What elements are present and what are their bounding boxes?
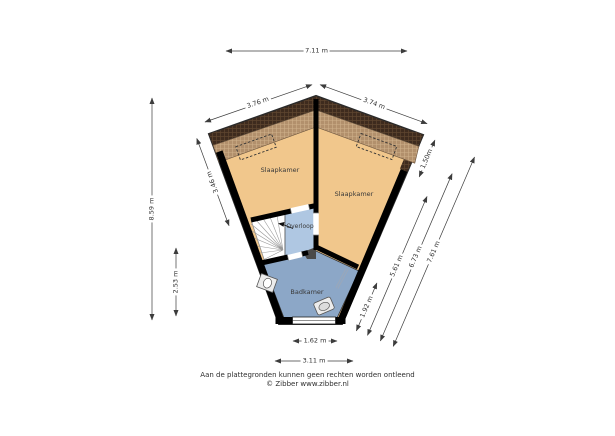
- room-label-slaapkamer-left: Slaapkamer: [261, 167, 300, 174]
- window: [293, 317, 336, 324]
- door-bathroom: [288, 254, 302, 257]
- footer-line1: Aan de plattegronden kunnen geen rechten…: [0, 371, 615, 380]
- dim-label-bottom-window: 1.62 m: [302, 337, 329, 344]
- room-label-slaapkamer-right: Slaapkamer: [335, 191, 374, 198]
- floorplan-screenshot: 7.11 m 3.76 m 3.74 m 8.59 m 3.46 m 2.53 …: [0, 0, 615, 436]
- room-label-badkamer: Badkamer: [290, 289, 323, 296]
- footer-line2: © Zibber www.zibber.nl: [0, 380, 615, 389]
- dim-label-overall-width: 7.11 m: [303, 47, 330, 54]
- footer-disclaimer: Aan de plattegronden kunnen geen rechten…: [0, 371, 615, 390]
- dim-label-left-lower: 2.53 m: [172, 269, 179, 296]
- door-bedroom-left: [291, 207, 309, 211]
- room-label-overloop: Overloop: [286, 224, 313, 230]
- dim-label-bottom-width: 3.11 m: [301, 357, 328, 364]
- dim-label-overall-height: 8.59 m: [148, 196, 155, 223]
